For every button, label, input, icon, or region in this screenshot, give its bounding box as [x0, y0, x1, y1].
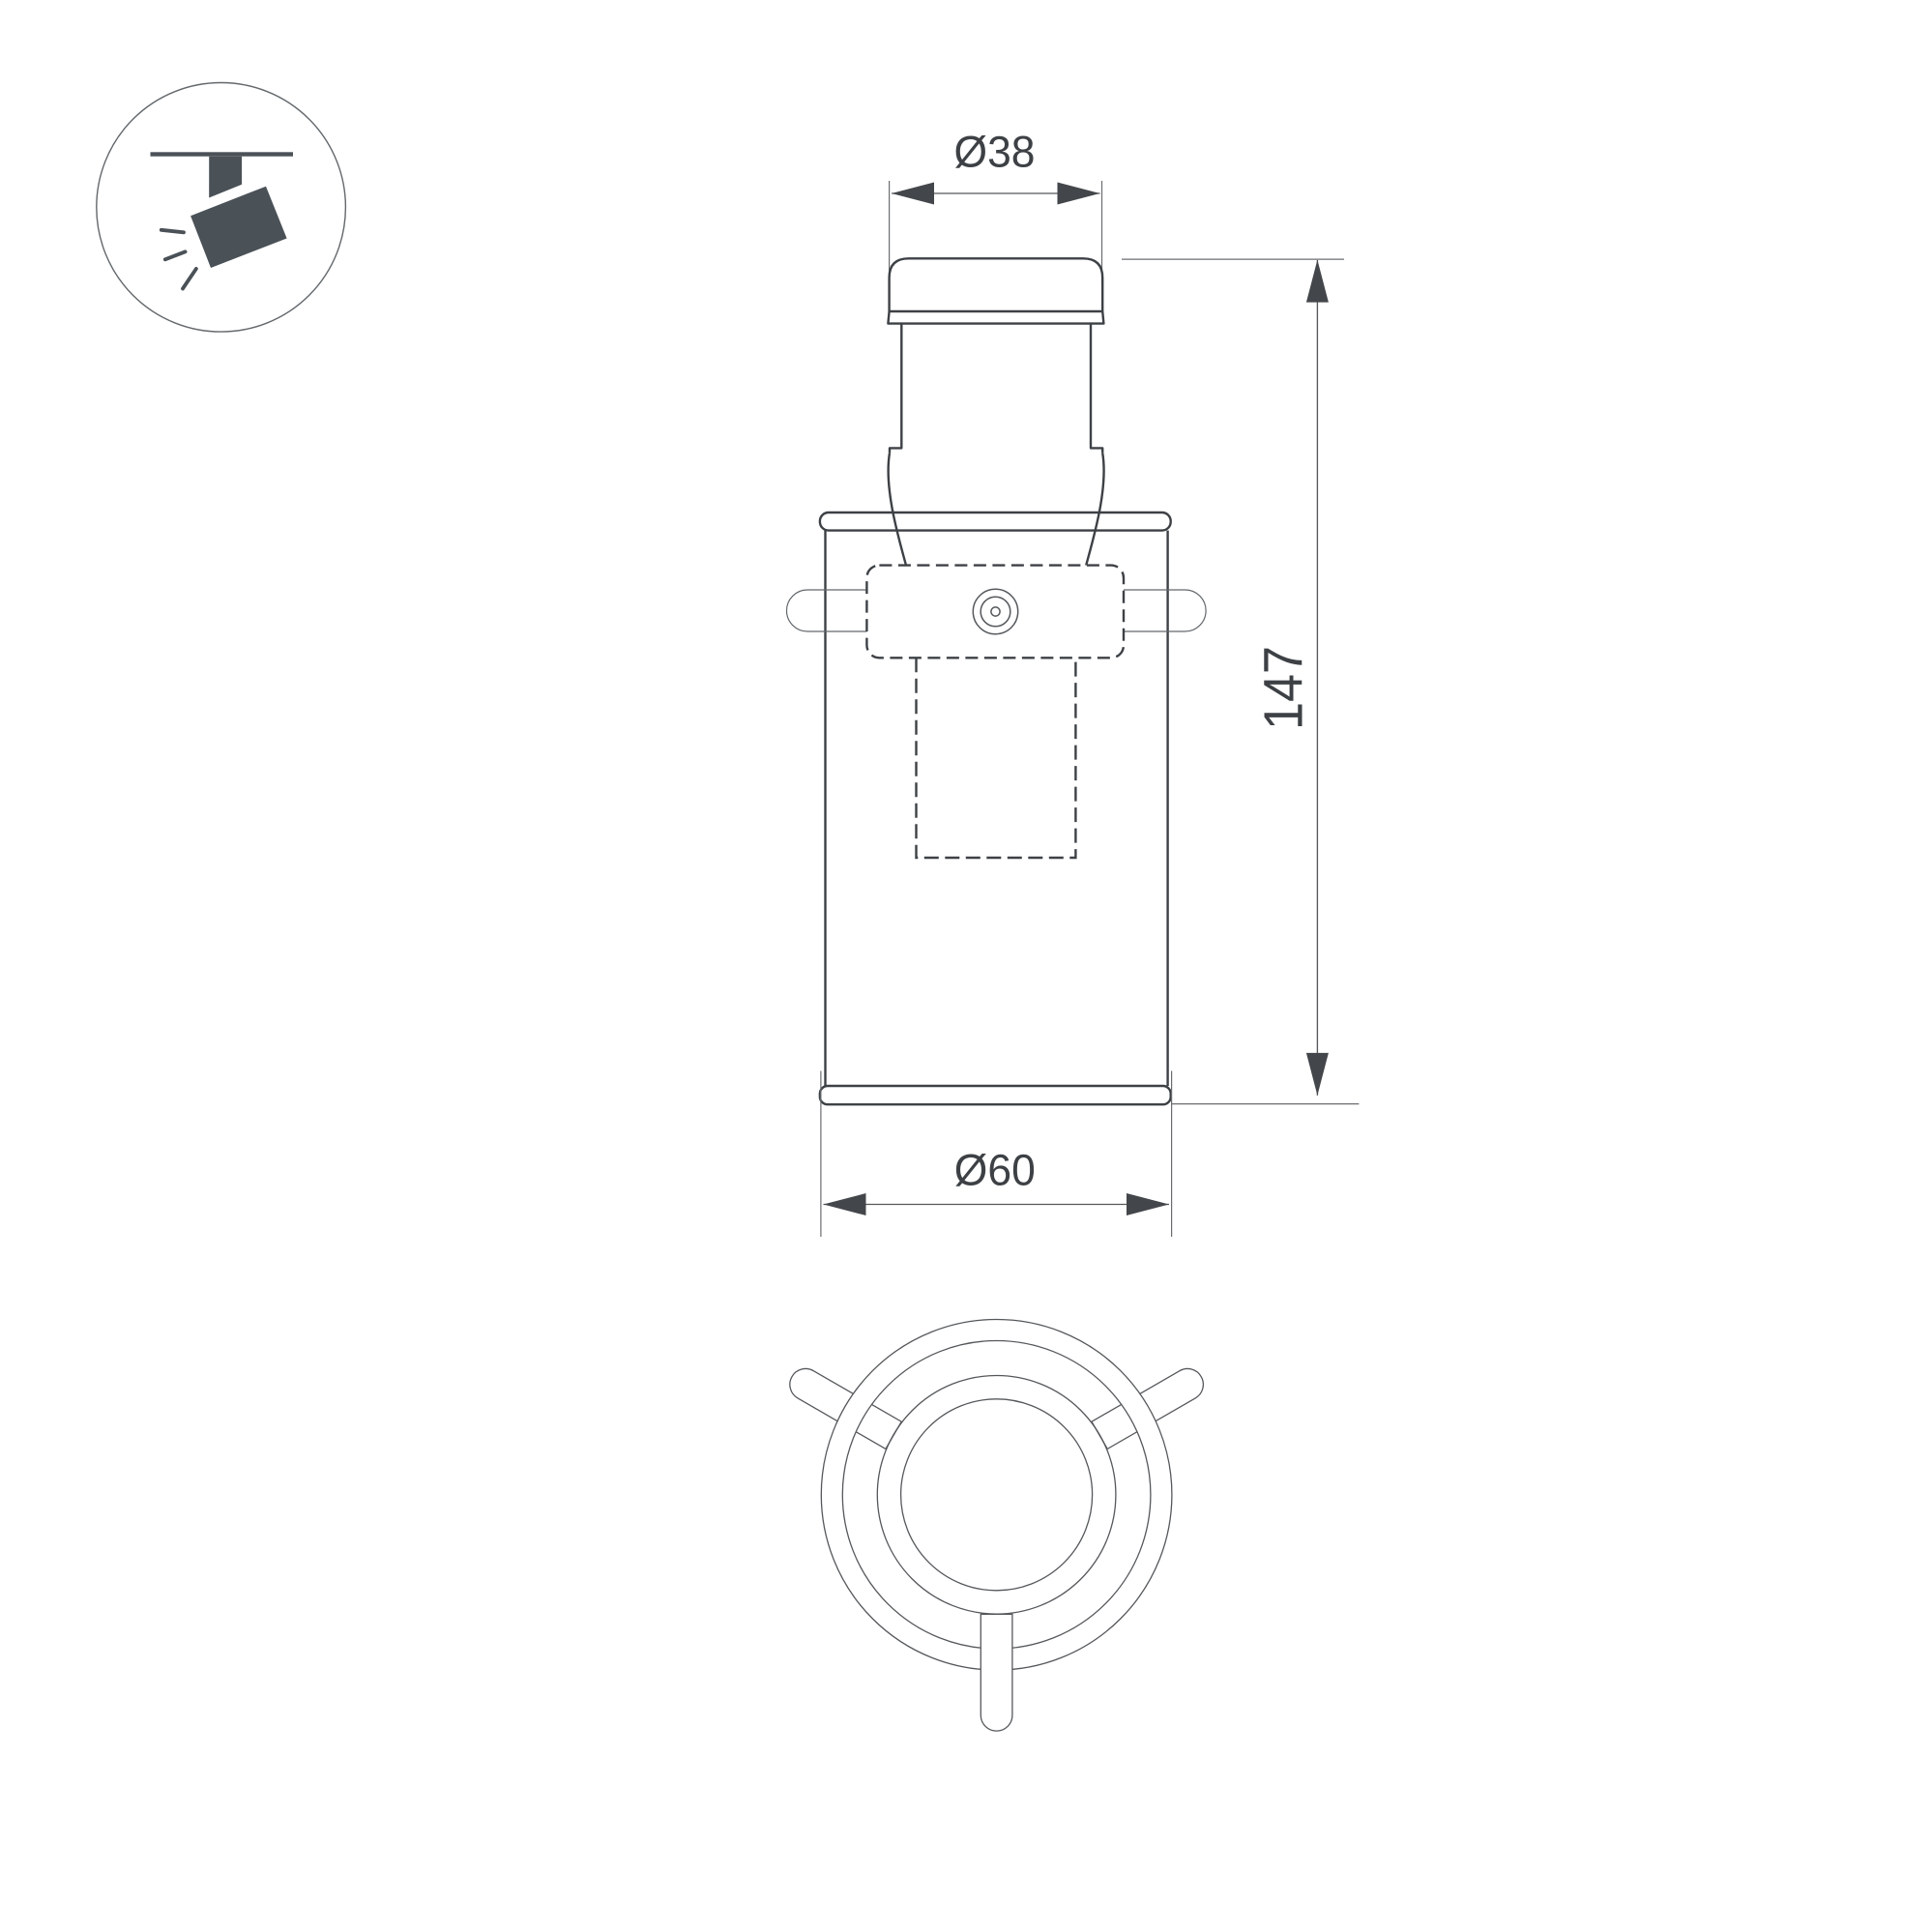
svg-text:147: 147 — [1253, 646, 1315, 730]
svg-text:Ø60: Ø60 — [954, 1146, 1036, 1195]
svg-text:Ø38: Ø38 — [954, 128, 1036, 177]
